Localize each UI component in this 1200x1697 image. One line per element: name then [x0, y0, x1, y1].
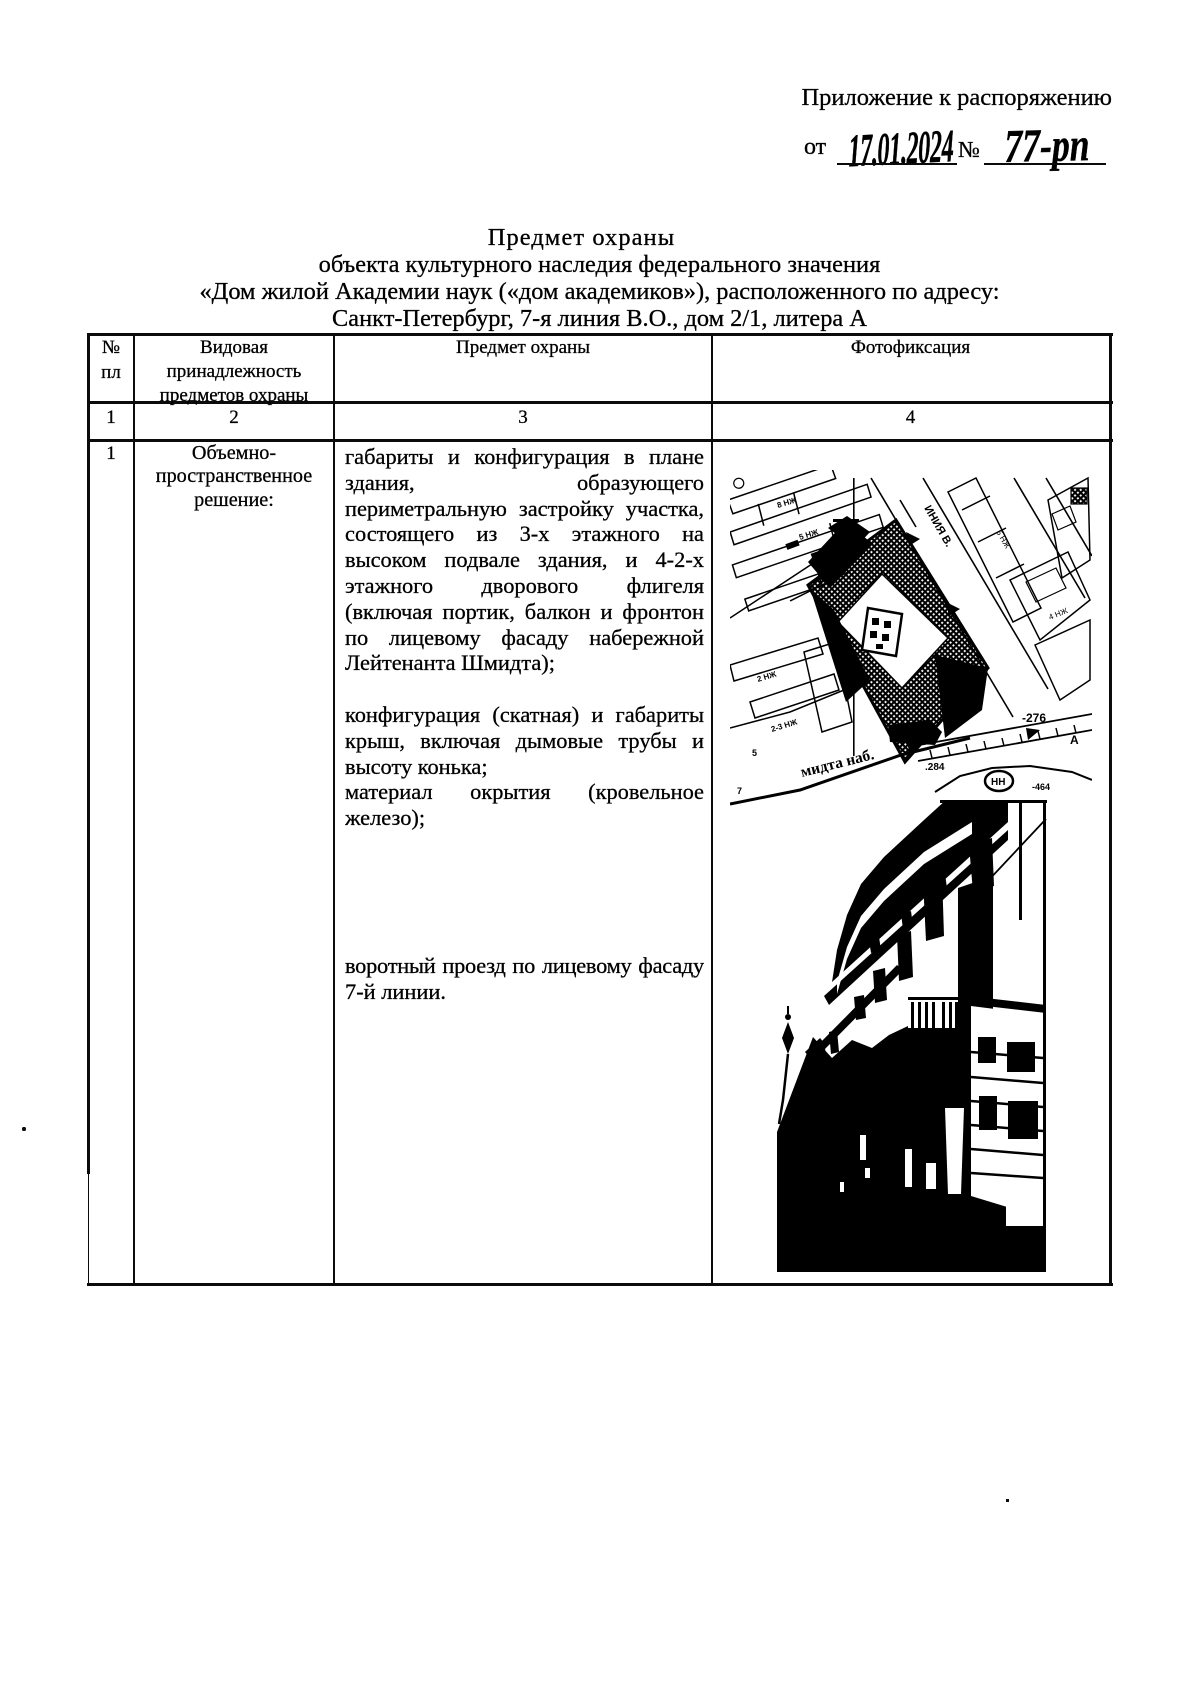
svg-text:5 НЖ: 5 НЖ [798, 527, 820, 542]
svg-text:2-3 НЖ: 2-3 НЖ [770, 717, 799, 734]
svg-text:A: A [1070, 733, 1079, 747]
svg-text:5 НЖ: 5 НЖ [994, 529, 1012, 551]
svg-text:-276: -276 [1022, 711, 1046, 725]
svg-text:.284: .284 [925, 762, 945, 773]
svg-text:ИНИЯ В.: ИНИЯ В. [921, 504, 954, 550]
svg-text:НН: НН [991, 777, 1005, 788]
svg-text:7: 7 [737, 786, 742, 796]
svg-text:-464: -464 [1032, 782, 1050, 792]
svg-text:5: 5 [752, 748, 757, 758]
svg-text:2 НЖ: 2 НЖ [756, 669, 778, 684]
